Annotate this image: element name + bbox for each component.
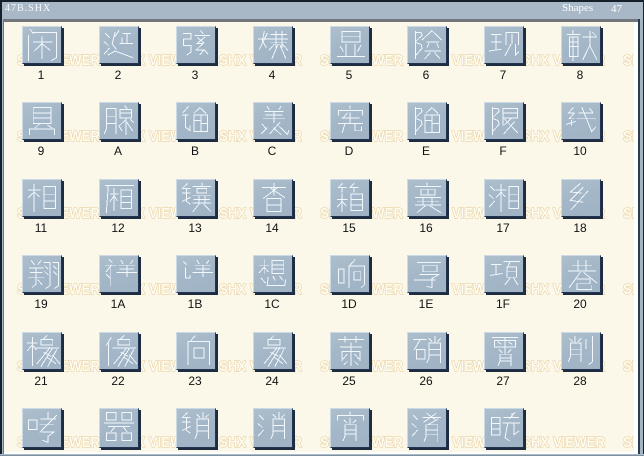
- svg-text:SHX VIEWER: SHX VIEWER: [522, 434, 605, 451]
